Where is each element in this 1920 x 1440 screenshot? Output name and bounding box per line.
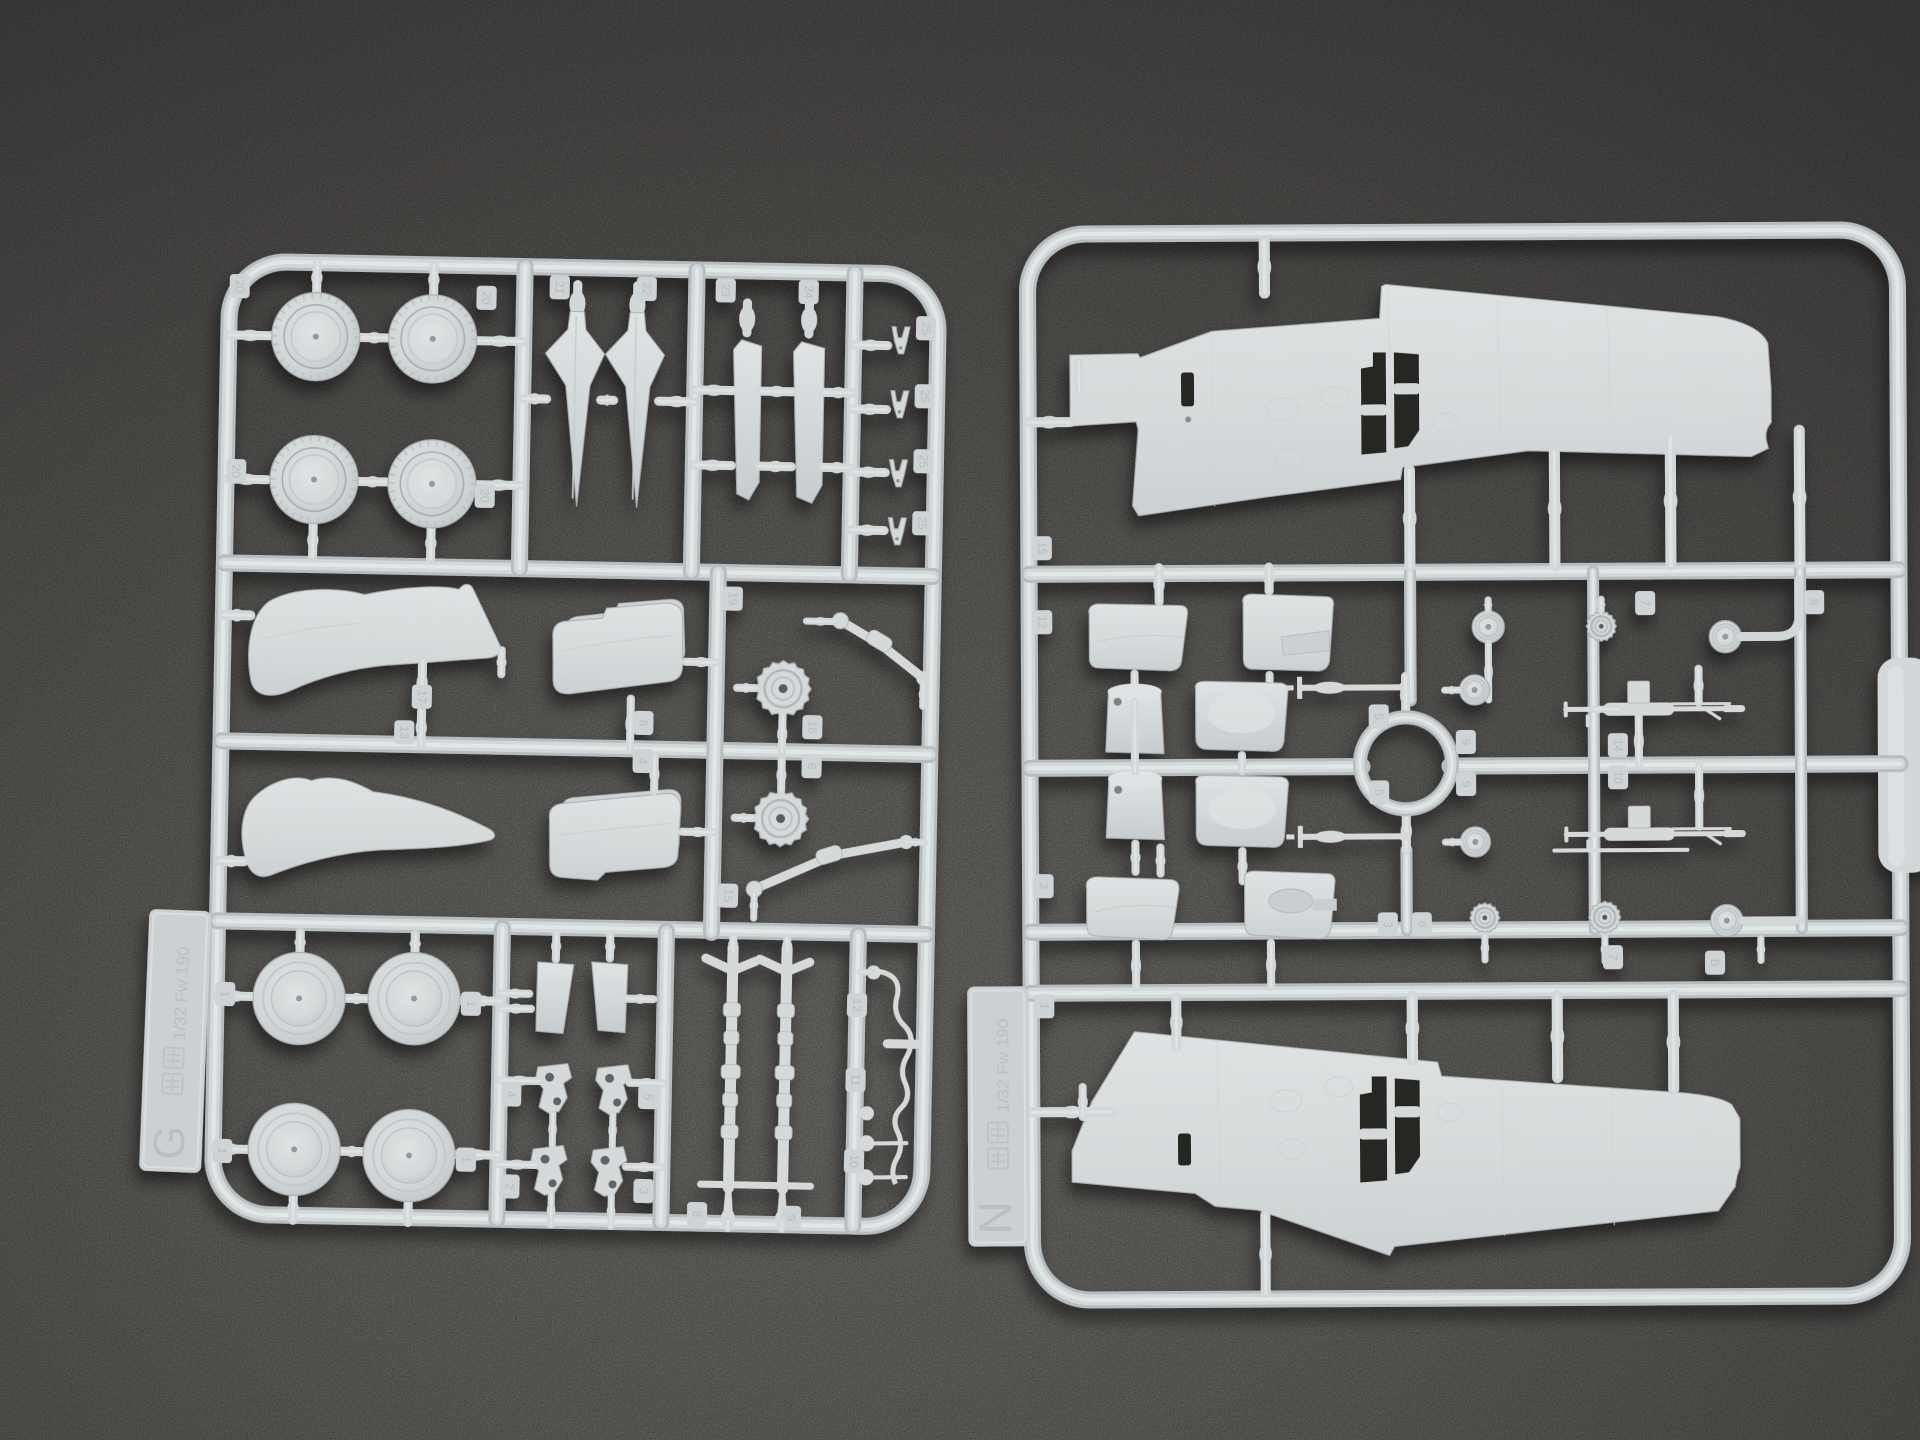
svg-text:6: 6 [1415,921,1429,928]
svg-text:8: 8 [690,1211,704,1218]
svg-text:15: 15 [721,889,735,903]
svg-text:13: 13 [397,726,411,740]
svg-text:1: 1 [464,1000,478,1007]
svg-text:24: 24 [802,285,816,299]
svg-text:16: 16 [805,720,819,734]
svg-text:7: 7 [1606,954,1620,961]
svg-text:15: 15 [1035,541,1049,555]
svg-text:20: 20 [479,291,493,305]
svg-text:19: 19 [726,592,740,606]
svg-text:B: B [1708,959,1722,967]
svg-text:9: 9 [1459,739,1473,746]
svg-text:N: N [969,1201,1021,1235]
svg-text:5: 5 [1372,713,1386,720]
svg-text:4: 4 [636,757,650,764]
svg-text:1: 1 [218,990,232,997]
svg-text:23: 23 [719,284,733,298]
svg-text:25: 25 [916,454,930,468]
svg-text:5: 5 [1372,789,1386,796]
svg-text:9: 9 [1459,781,1473,788]
svg-text:2: 2 [502,1183,516,1190]
svg-text:12: 12 [850,998,864,1012]
svg-text:3: 3 [636,1188,650,1195]
svg-text:6: 6 [805,763,819,770]
svg-text:5: 5 [641,1094,655,1101]
svg-text:12: 12 [1035,615,1049,629]
svg-text:20: 20 [233,279,247,293]
svg-text:1/32 Fw 190: 1/32 Fw 190 [170,946,193,1040]
svg-text:7: 7 [1638,600,1652,607]
svg-text:3: 3 [1381,921,1395,928]
svg-text:10: 10 [847,1154,861,1168]
svg-text:1: 1 [215,1147,229,1154]
svg-text:8: 8 [636,719,650,726]
svg-text:22: 22 [640,282,654,296]
svg-text:1: 1 [1037,1003,1051,1010]
svg-text:2: 2 [1037,883,1051,890]
svg-text:14: 14 [1611,738,1625,752]
svg-text:25: 25 [919,321,933,335]
svg-text:9: 9 [784,1214,798,1221]
svg-text:11: 11 [848,1074,862,1087]
svg-text:17: 17 [415,690,429,704]
svg-text:21: 21 [553,280,567,294]
svg-text:20: 20 [229,464,243,478]
svg-text:10: 10 [1611,770,1625,784]
svg-text:25: 25 [915,516,929,530]
svg-text:20: 20 [478,489,492,503]
svg-text:1: 1 [459,1156,473,1163]
svg-text:25: 25 [918,389,932,403]
svg-text:G: G [144,1125,194,1161]
svg-text:8: 8 [1807,599,1821,606]
svg-text:4: 4 [504,1091,518,1098]
svg-text:1/32 Fw 190: 1/32 Fw 190 [993,1019,1012,1113]
